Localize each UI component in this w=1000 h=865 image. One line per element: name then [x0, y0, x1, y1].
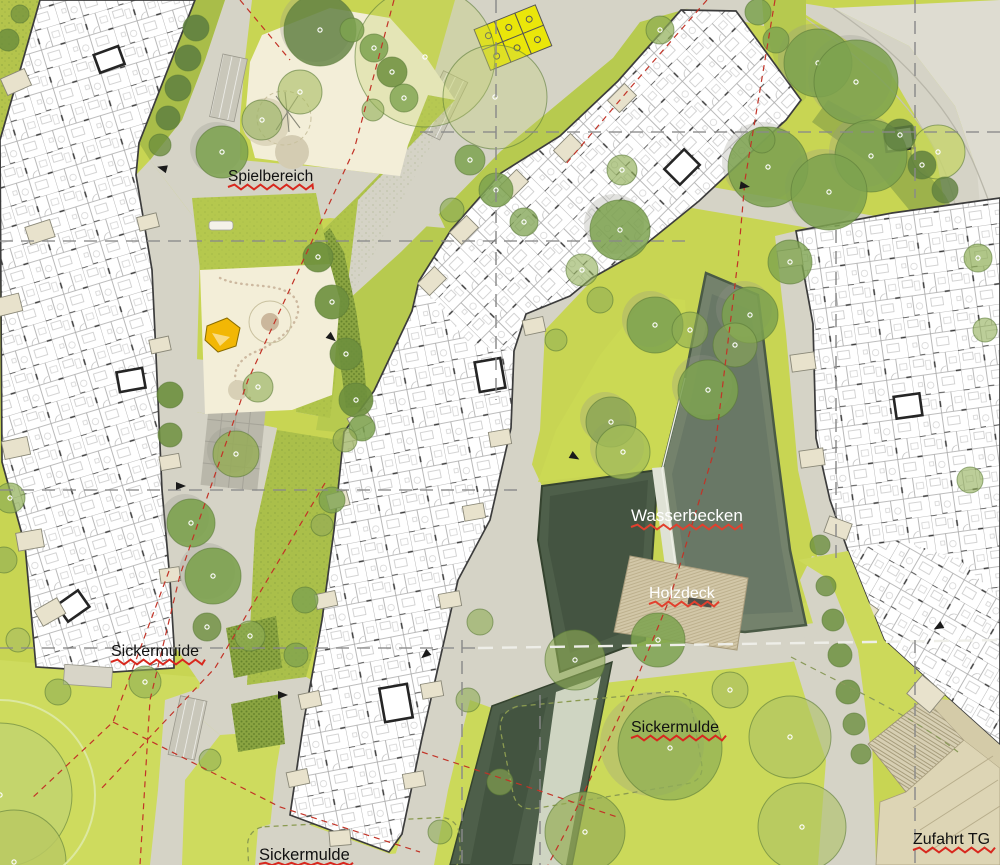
svg-text:Holzdeck: Holzdeck [649, 585, 716, 602]
svg-text:Sickermulde: Sickermulde [259, 846, 350, 864]
svg-text:Wasserbecken: Wasserbecken [631, 506, 743, 525]
svg-text:Sickermuide: Sickermuide [111, 643, 199, 660]
svg-text:Spielbereich: Spielbereich [228, 168, 313, 185]
svg-text:Sickermulde: Sickermulde [631, 719, 719, 736]
svg-text:Zufahrt TG: Zufahrt TG [913, 831, 990, 848]
